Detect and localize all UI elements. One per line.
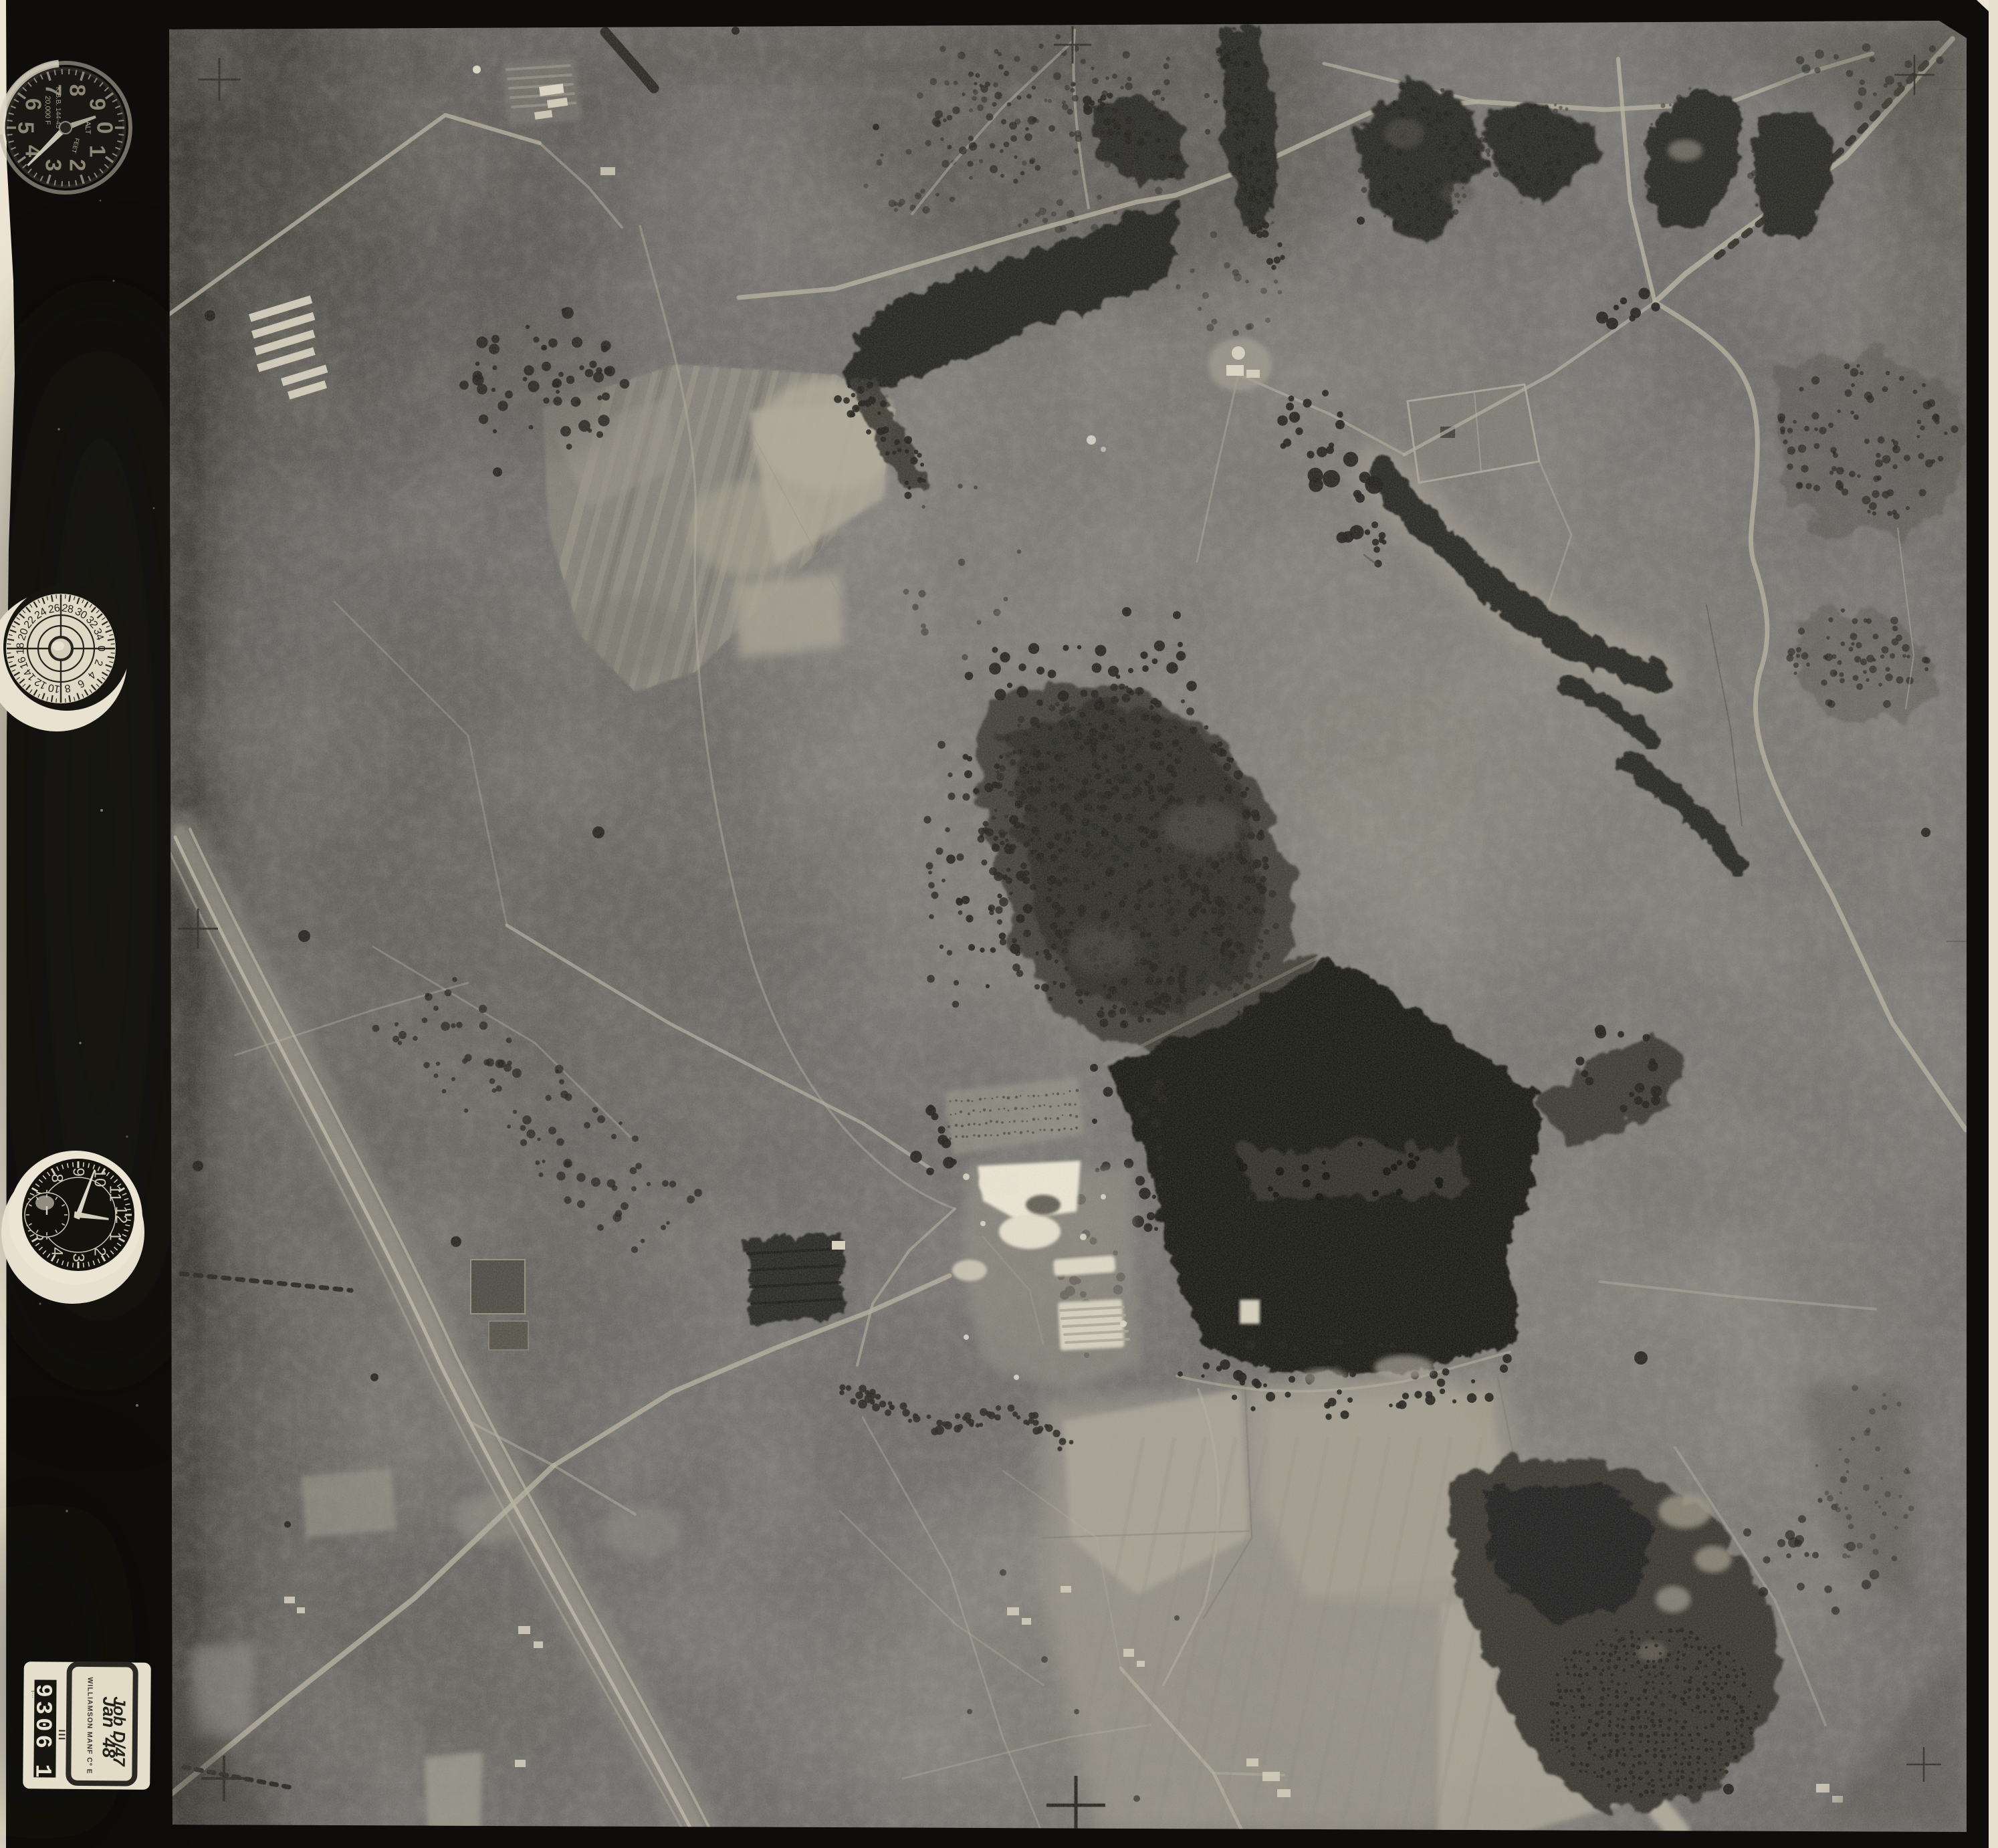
svg-text:1: 1 [86, 145, 110, 157]
svg-text:8: 8 [66, 84, 90, 96]
svg-text:2: 2 [91, 1247, 109, 1256]
svg-text:9: 9 [86, 98, 110, 110]
svg-text:4: 4 [48, 1247, 66, 1256]
svg-text:9: 9 [70, 1167, 88, 1176]
svg-text:20,000 F: 20,000 F [43, 96, 51, 125]
svg-text:11: 11 [106, 1185, 124, 1202]
svg-text:5: 5 [14, 122, 39, 134]
svg-text:26: 26 [47, 602, 62, 616]
svg-text:Jan ’48: Jan ’48 [99, 1696, 120, 1758]
svg-text:WILLIAMSON MANF Cº E: WILLIAMSON MANF Cº E [85, 1677, 94, 1774]
svg-text:2: 2 [66, 159, 90, 171]
svg-text:ALT: ALT [84, 121, 92, 134]
svg-text:8: 8 [48, 1173, 66, 1182]
svg-text:12: 12 [112, 1206, 130, 1224]
svg-text:6: 6 [21, 98, 46, 110]
svg-text:1: 1 [29, 1764, 54, 1778]
svg-text:3: 3 [70, 1253, 88, 1262]
svg-text:K.B.B. 144-45: K.B.B. 144-45 [54, 87, 62, 129]
svg-text:3: 3 [41, 159, 66, 171]
svg-text:10: 10 [47, 681, 62, 695]
svg-text:I···: I··· [29, 1690, 36, 1698]
svg-text:1: 1 [106, 1232, 124, 1240]
svg-text:III: III [57, 1730, 68, 1742]
svg-text:28: 28 [61, 602, 75, 616]
svg-text:0: 0 [93, 122, 118, 134]
